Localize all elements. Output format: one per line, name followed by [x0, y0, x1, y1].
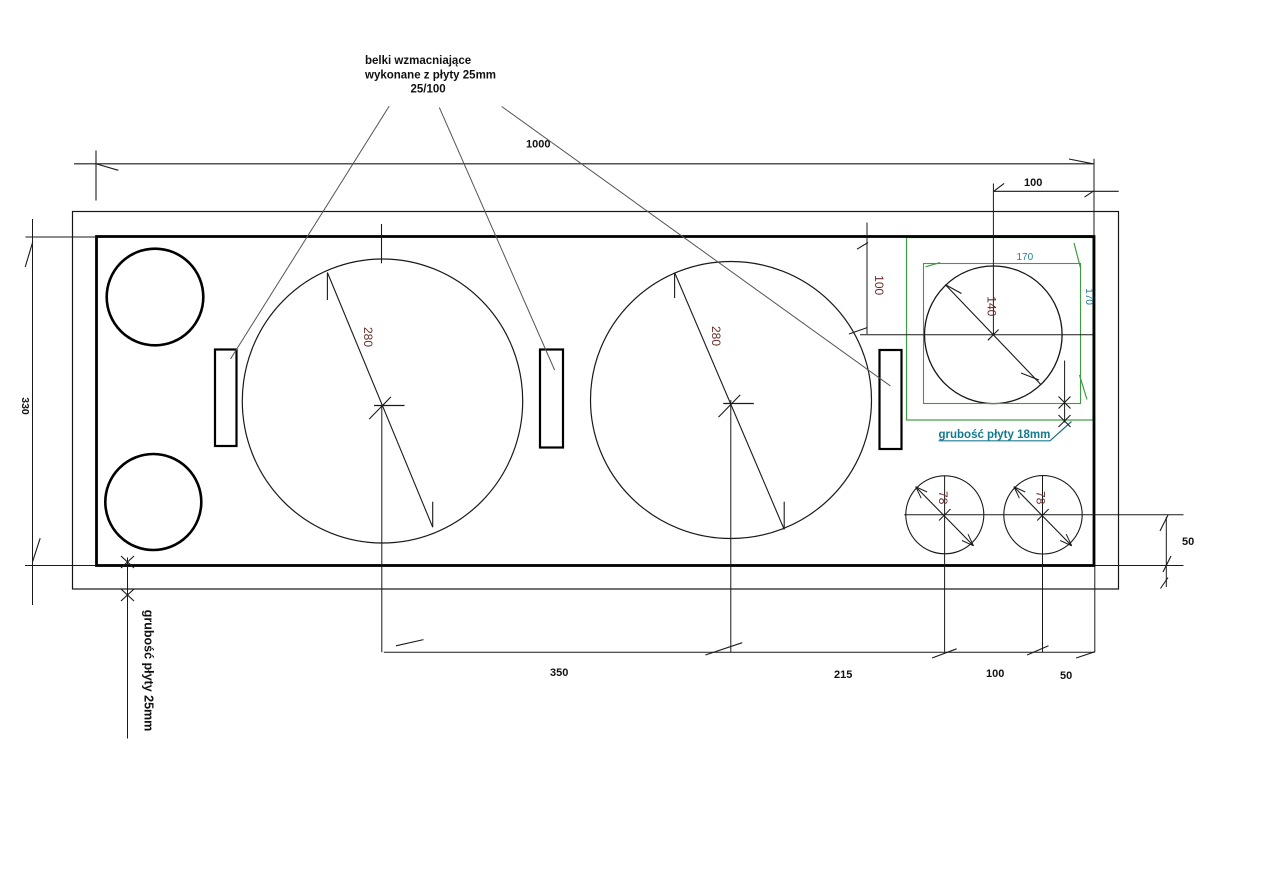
svg-text:170: 170	[1017, 252, 1034, 263]
svg-text:belki wzmacniające: belki wzmacniające	[365, 55, 471, 67]
svg-text:grubość płyty 18mm: grubość płyty 18mm	[939, 429, 1051, 441]
svg-text:215: 215	[834, 669, 852, 681]
svg-text:140: 140	[985, 296, 999, 316]
svg-text:350: 350	[550, 667, 568, 679]
svg-text:1000: 1000	[526, 139, 550, 151]
svg-text:280: 280	[709, 326, 723, 346]
svg-text:50: 50	[1060, 670, 1072, 682]
svg-text:280: 280	[361, 327, 375, 347]
svg-text:25/100: 25/100	[411, 84, 446, 96]
svg-text:170: 170	[1083, 288, 1094, 305]
svg-text:50: 50	[1182, 536, 1194, 548]
svg-text:wykonane z płyty 25mm: wykonane z płyty 25mm	[364, 69, 496, 81]
svg-text:330: 330	[19, 397, 31, 415]
svg-text:grubość płyty 25mm: grubość płyty 25mm	[142, 610, 156, 732]
svg-text:78: 78	[936, 491, 950, 505]
svg-text:100: 100	[872, 275, 886, 295]
svg-text:100: 100	[986, 668, 1004, 680]
svg-text:100: 100	[1024, 177, 1042, 189]
svg-text:78: 78	[1034, 491, 1048, 505]
